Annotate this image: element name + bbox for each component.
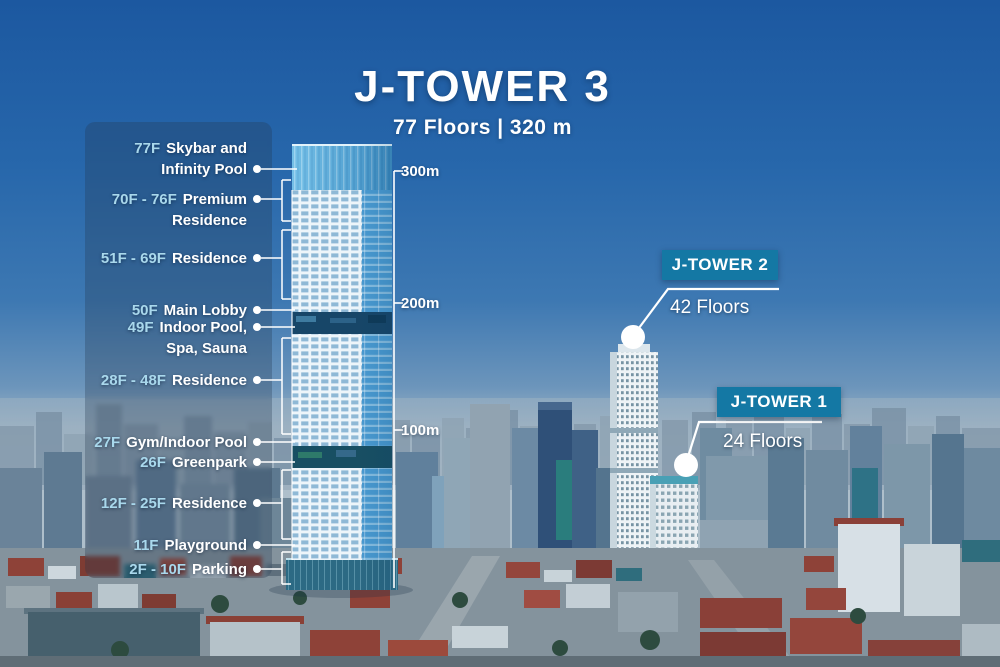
floor-use: Residence — [172, 495, 247, 512]
floor-connectors — [261, 169, 297, 584]
jtower1-floors: 24 Floors — [723, 431, 802, 453]
jtower1-marker-dot — [674, 453, 698, 477]
floor-annotation: 49FIndoor Pool, Spa, Sauna — [128, 317, 247, 359]
height-marker-200m: 200m — [401, 295, 439, 312]
floor-annotation: 26FGreenpark — [140, 452, 247, 473]
floor-annotation: 28F - 48FResidence — [101, 370, 247, 391]
floor-range: 49F — [128, 319, 154, 336]
height-scale — [394, 171, 403, 588]
floor-range: 27F — [94, 434, 120, 451]
floor-range: 26F — [140, 454, 166, 471]
jtower1-badge: J-TOWER 1 — [717, 387, 841, 417]
callout-markers — [621, 325, 698, 477]
floor-range: 2F - 10F — [129, 561, 186, 578]
infographic: J-TOWER 3 77 Floors | 320 m 77FSkybar an… — [0, 0, 1000, 667]
floor-range: 11F — [133, 537, 158, 554]
floor-annotation: 51F - 69FResidence — [101, 248, 247, 269]
floor-range: 12F - 25F — [101, 495, 166, 512]
floor-use: Indoor Pool, Spa, Sauna — [160, 319, 248, 357]
page-title: J-TOWER 3 — [0, 62, 965, 112]
height-marker-100m: 100m — [401, 422, 439, 439]
jtower2-floors: 42 Floors — [670, 297, 749, 319]
floor-annotation: 12F - 25FResidence — [101, 493, 247, 514]
floor-range: 28F - 48F — [101, 372, 166, 389]
jtower2-badge: J-TOWER 2 — [662, 250, 778, 280]
title-block: J-TOWER 3 77 Floors | 320 m — [0, 62, 965, 140]
floor-use: Premium Residence — [172, 191, 247, 229]
height-marker-300m: 300m — [401, 163, 439, 180]
page-subtitle: 77 Floors | 320 m — [0, 116, 965, 140]
floor-range: 51F - 69F — [101, 250, 166, 267]
floor-annotation: 2F - 10FParking — [129, 559, 247, 580]
floor-annotation: 11FPlayground — [133, 535, 247, 556]
floor-range: 70F - 76F — [112, 191, 177, 208]
floor-use: Residence — [172, 250, 247, 267]
floor-annotation: 70F - 76FPremium Residence — [112, 189, 247, 231]
jtower2-marker-dot — [621, 325, 645, 349]
floor-use: Skybar and Infinity Pool — [161, 140, 247, 178]
floor-use: Residence — [172, 372, 247, 389]
floor-use: Parking — [192, 561, 247, 578]
floor-connector-dots — [253, 165, 261, 573]
floor-use: Gym/Indoor Pool — [126, 434, 247, 451]
floor-annotation: 27FGym/Indoor Pool — [94, 432, 247, 453]
floor-use: Playground — [164, 537, 247, 554]
floor-range: 77F — [134, 140, 160, 157]
floor-annotation: 77FSkybar and Infinity Pool — [134, 138, 247, 180]
floor-use: Greenpark — [172, 454, 247, 471]
